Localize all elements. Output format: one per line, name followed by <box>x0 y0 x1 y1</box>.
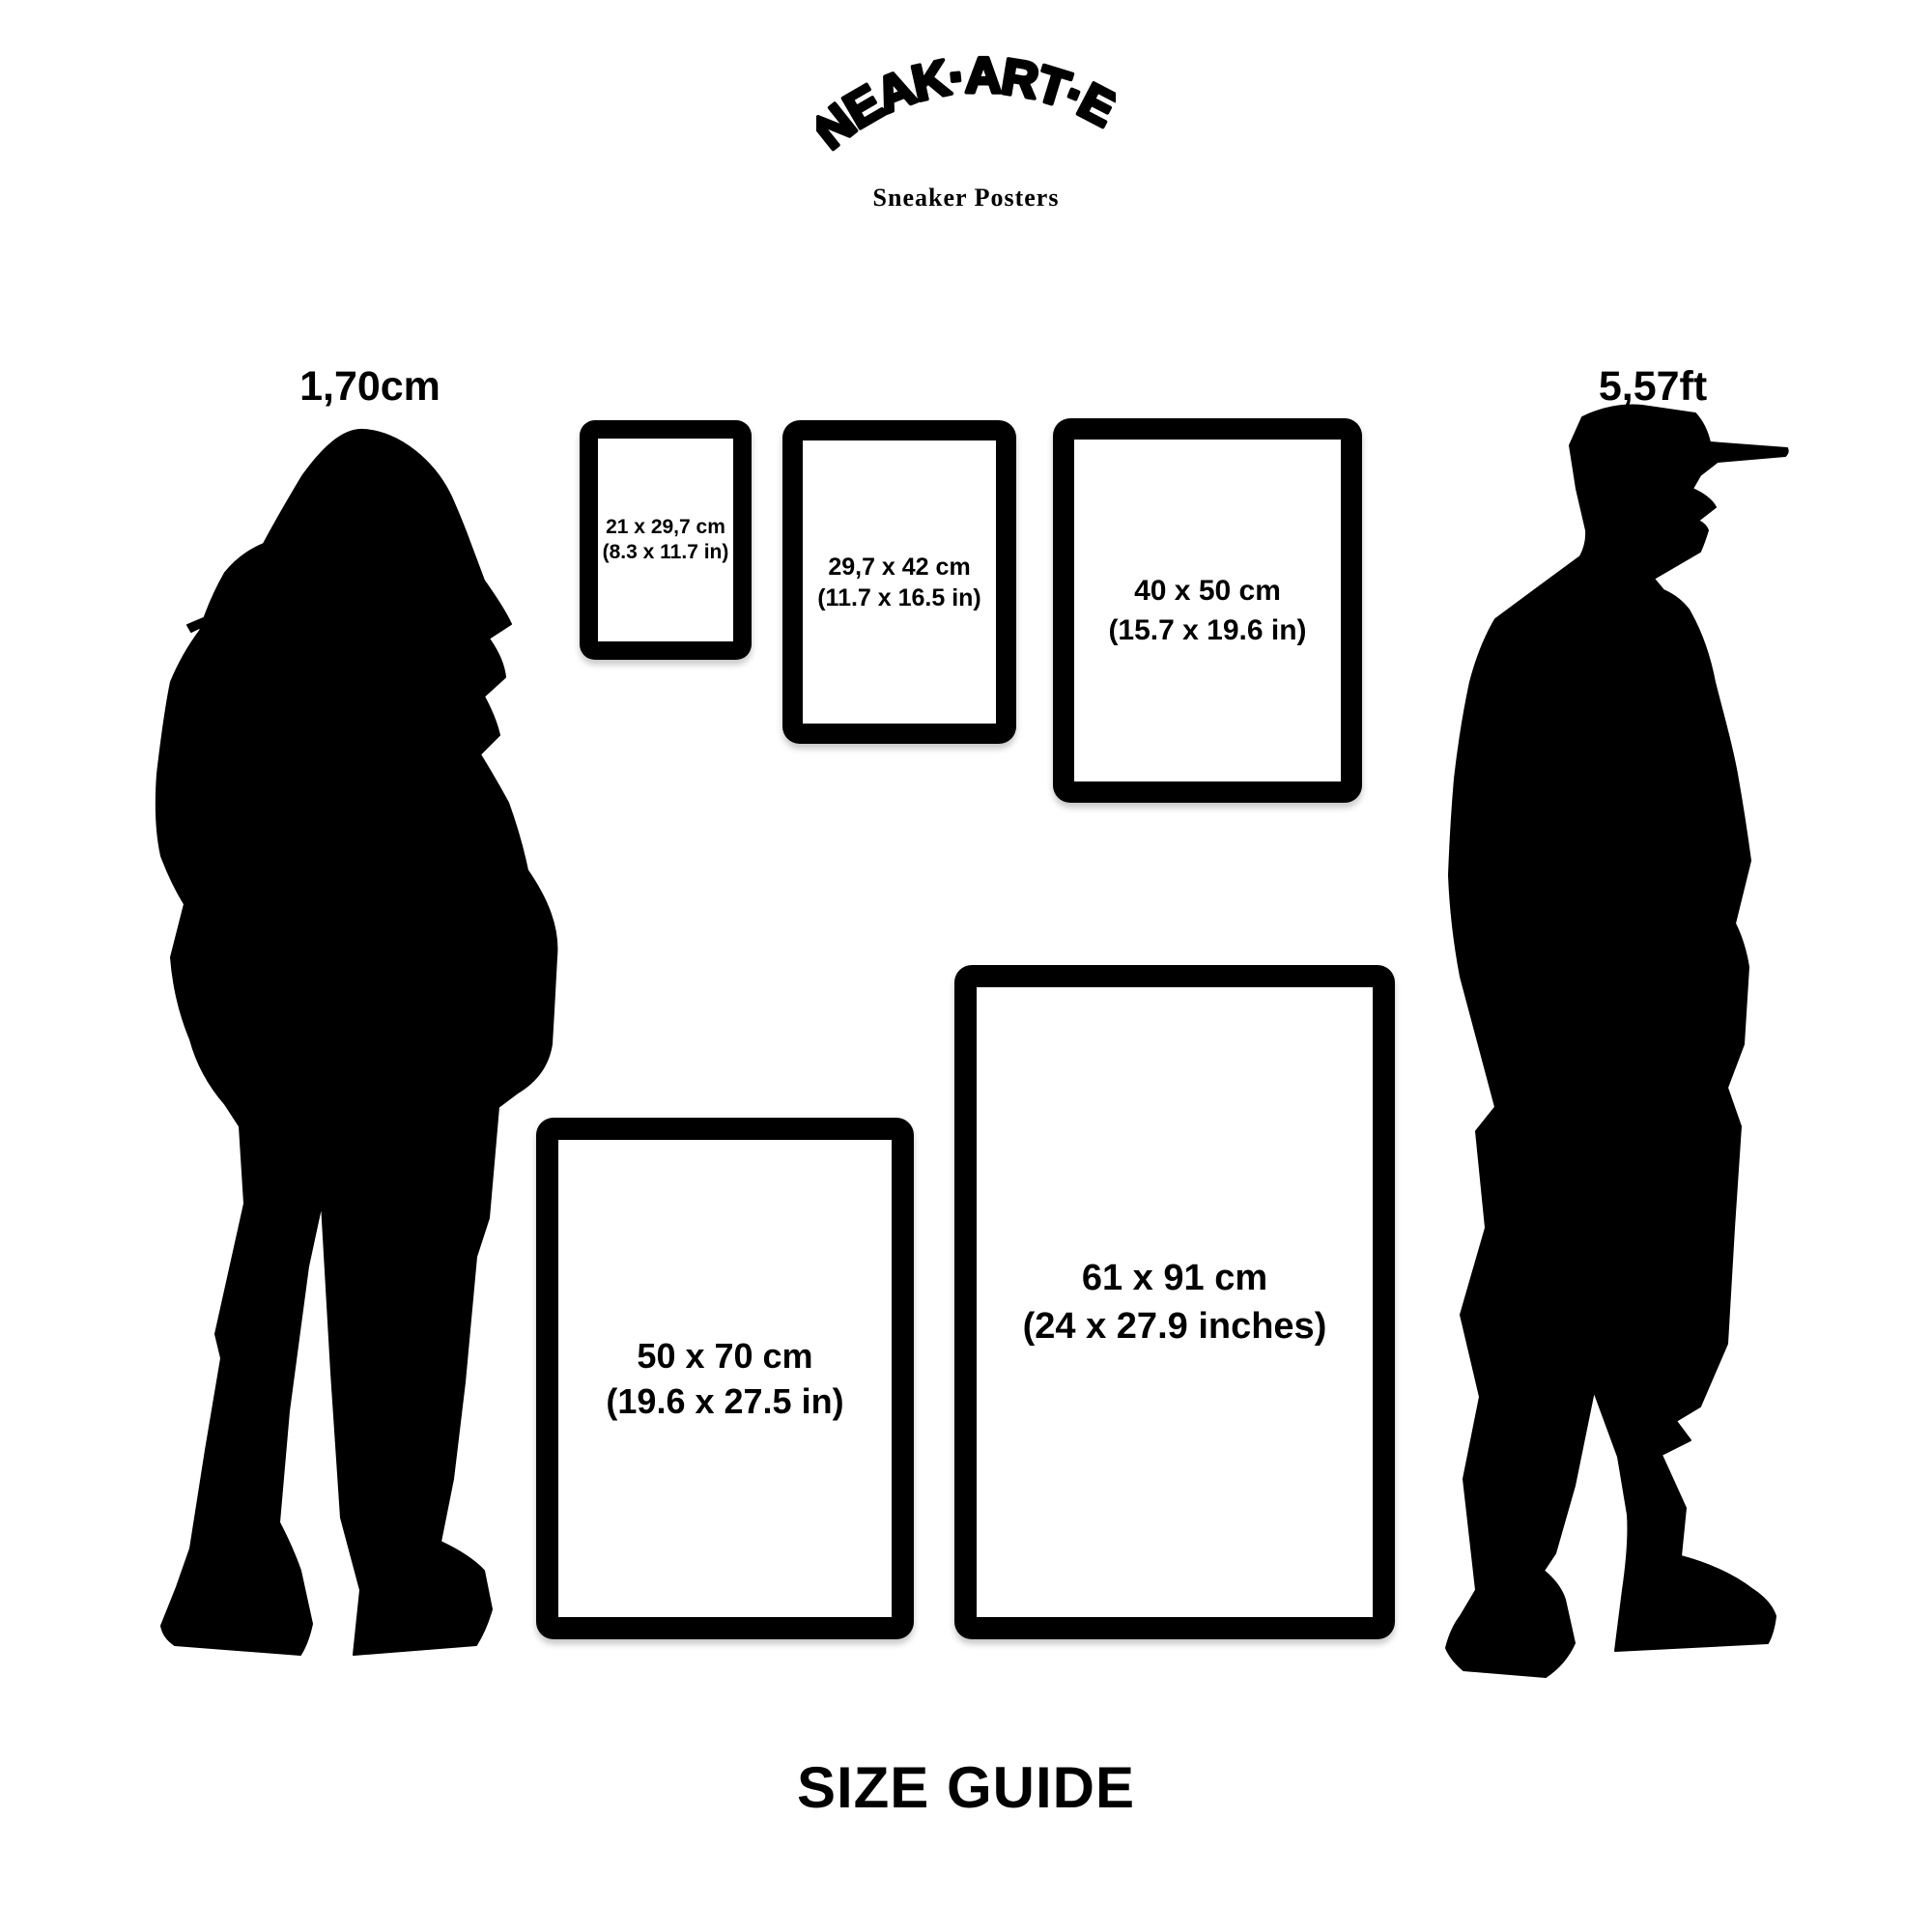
size-guide-poster: SNEAK·ART·EL Sneaker Posters 1,70cm 5,57… <box>0 0 1932 1932</box>
frame-21x29: 21 x 29,7 cm (8.3 x 11.7 in) <box>580 420 752 660</box>
frame-size-cm: 21 x 29,7 cm <box>606 515 725 540</box>
brand-logo: SNEAK·ART·EL <box>816 48 1116 191</box>
frame-size-cm: 29,7 x 42 cm <box>828 552 970 582</box>
frame-size-in: (15.7 x 19.6 in) <box>1108 611 1306 650</box>
svg-text:SNEAK·ART·EL: SNEAK·ART·EL <box>816 48 1116 160</box>
frame-size-in: (24 x 27.9 inches) <box>1023 1302 1327 1350</box>
frame-29x42: 29,7 x 42 cm (11.7 x 16.5 in) <box>782 420 1016 744</box>
frame-size-cm: 61 x 91 cm <box>1082 1254 1267 1302</box>
woman-silhouette-icon <box>135 411 570 1666</box>
frame-size-in: (11.7 x 16.5 in) <box>817 582 981 613</box>
frame-61x91: 61 x 91 cm (24 x 27.9 inches) <box>954 965 1395 1639</box>
frame-size-in: (19.6 x 27.5 in) <box>606 1378 843 1424</box>
frame-40x50: 40 x 50 cm (15.7 x 19.6 in) <box>1053 418 1362 803</box>
brand-logo-text: SNEAK·ART·EL <box>816 48 1116 160</box>
frame-50x70: 50 x 70 cm (19.6 x 27.5 in) <box>536 1118 914 1639</box>
man-silhouette-icon <box>1430 404 1806 1684</box>
page-title: SIZE GUIDE <box>0 1754 1932 1821</box>
brand-logo-icon: SNEAK·ART·EL <box>816 48 1116 191</box>
woman-height-label: 1,70cm <box>249 363 491 411</box>
frame-size-in: (8.3 x 11.7 in) <box>603 540 729 565</box>
brand-tagline: Sneaker Posters <box>821 184 1111 213</box>
frame-size-cm: 40 x 50 cm <box>1134 571 1281 611</box>
frame-size-cm: 50 x 70 cm <box>637 1333 812 1378</box>
